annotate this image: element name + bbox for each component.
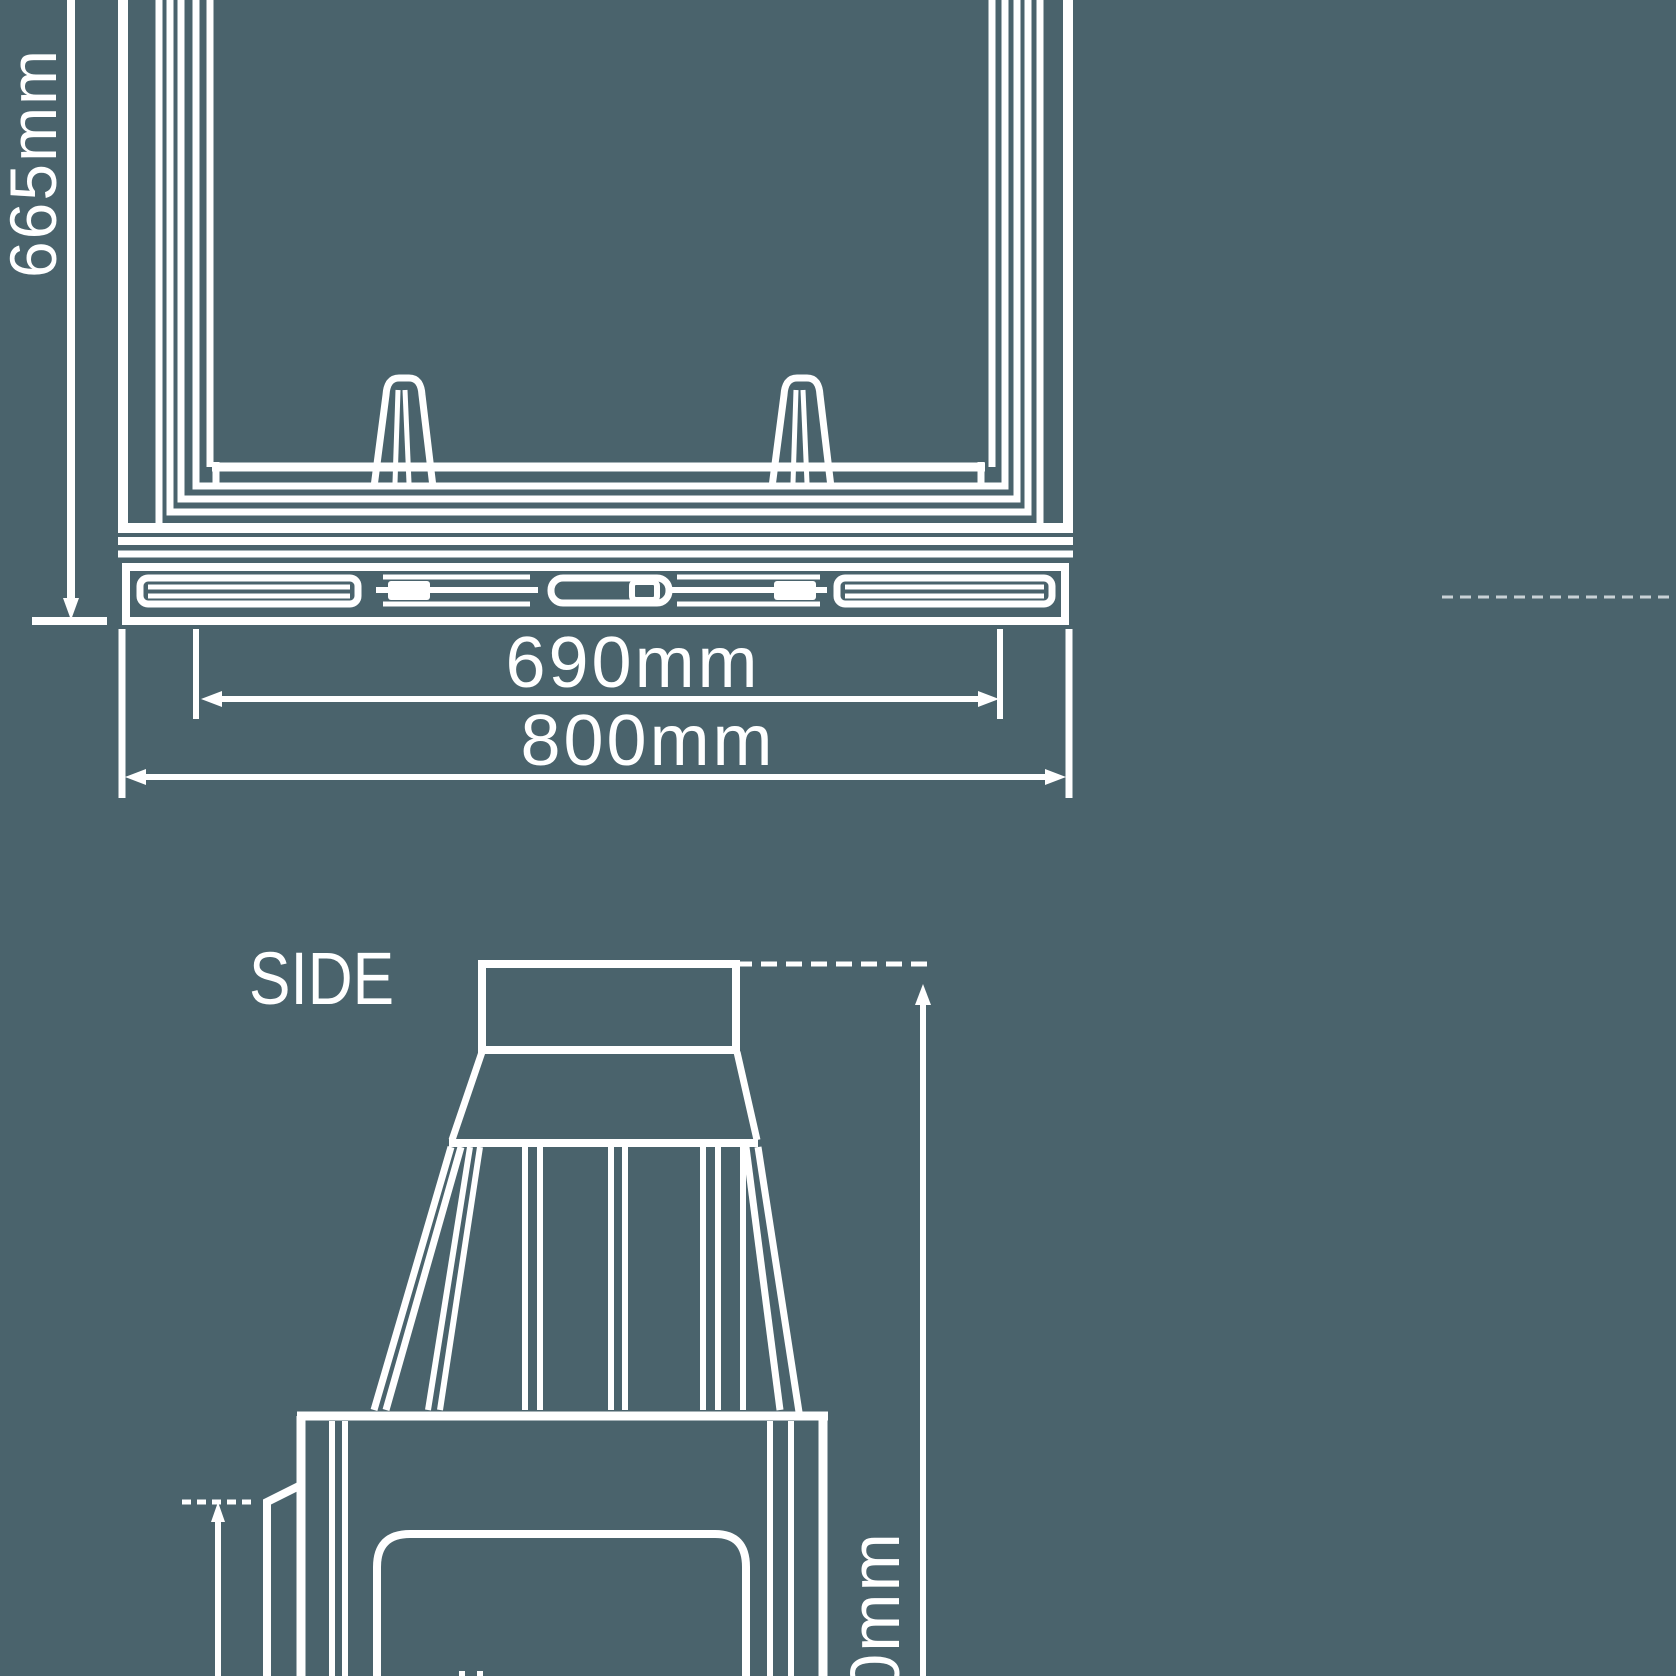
dimension-arrow-right bbox=[978, 691, 999, 707]
outer-width-dimension-label: 800mm bbox=[520, 705, 775, 777]
hood-slope bbox=[374, 1147, 799, 1412]
height-dimension-label: 665mm bbox=[0, 48, 66, 278]
flue-taper bbox=[449, 1052, 758, 1143]
vent-grille-left bbox=[140, 578, 358, 604]
fireplace-dimension-line-art bbox=[0, 0, 1676, 1676]
side-height-dimension-label: 0mm bbox=[840, 1531, 910, 1676]
door-latch bbox=[551, 578, 669, 603]
dimension-side-height bbox=[915, 984, 931, 1676]
air-slider-left bbox=[376, 577, 538, 604]
vent-grille-right bbox=[837, 578, 1052, 604]
technical-drawing-page: 665mm 690mm 800mm SIDE 0mm bbox=[0, 0, 1676, 1676]
air-slider-right bbox=[670, 577, 827, 604]
dimension-arrow-left bbox=[201, 691, 222, 707]
side-view-title: SIDE bbox=[249, 942, 394, 1016]
firebox-body bbox=[267, 1416, 828, 1676]
dimension-arrow-up bbox=[915, 984, 931, 1005]
dimension-arrow-right bbox=[1045, 769, 1066, 785]
door-glass-outline bbox=[377, 1534, 746, 1676]
control-bar bbox=[126, 567, 1065, 621]
dimension-arrow-down bbox=[63, 598, 79, 620]
dimension-arrow-left bbox=[125, 769, 146, 785]
side-view-drawing bbox=[182, 964, 935, 1676]
inner-width-dimension-label: 690mm bbox=[505, 627, 760, 699]
dimension-lip-height bbox=[182, 1502, 252, 1676]
flue-outline bbox=[478, 964, 935, 1050]
